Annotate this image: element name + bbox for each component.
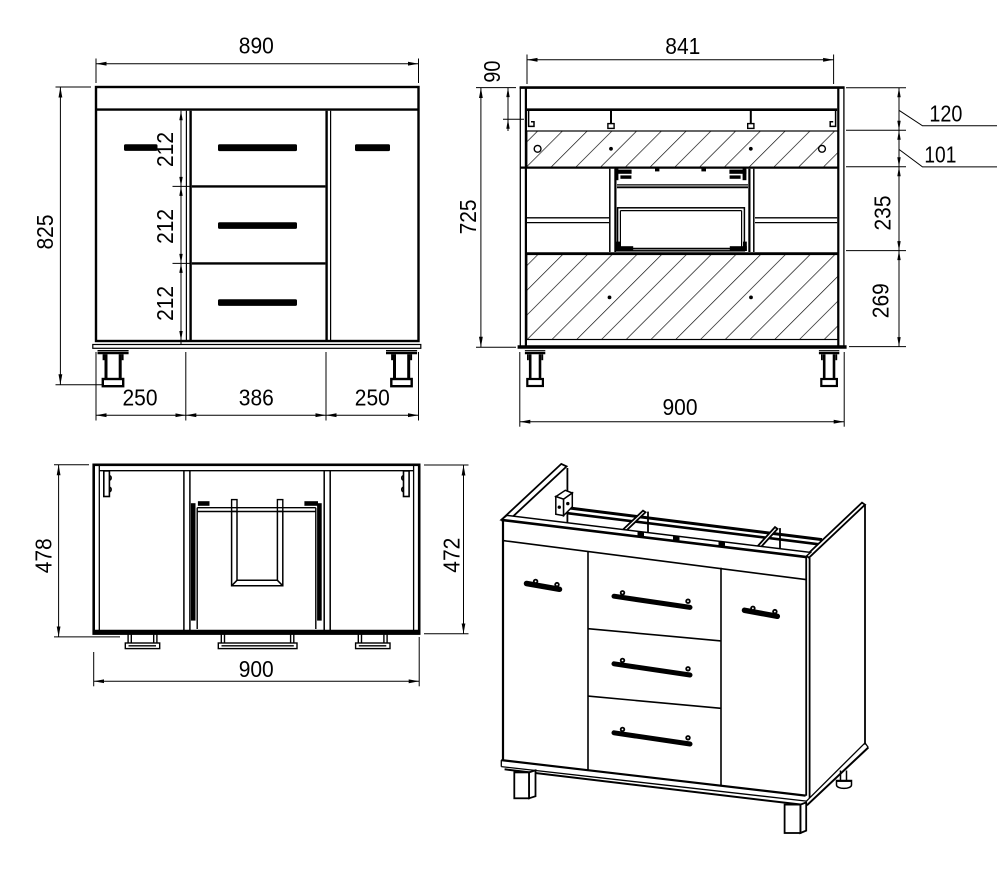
svg-text:725: 725 <box>455 199 481 234</box>
svg-text:250: 250 <box>355 384 390 410</box>
svg-text:478: 478 <box>30 538 56 573</box>
svg-text:212: 212 <box>152 132 178 167</box>
svg-text:472: 472 <box>438 538 464 573</box>
svg-text:120: 120 <box>929 100 962 126</box>
svg-text:101: 101 <box>924 142 956 168</box>
svg-text:250: 250 <box>123 384 158 410</box>
svg-text:900: 900 <box>663 394 698 420</box>
svg-text:386: 386 <box>239 384 274 410</box>
svg-text:235: 235 <box>870 196 896 231</box>
svg-text:212: 212 <box>152 209 178 244</box>
svg-text:90: 90 <box>479 61 505 83</box>
svg-text:890: 890 <box>239 33 274 59</box>
svg-text:825: 825 <box>32 215 58 250</box>
svg-text:212: 212 <box>152 286 178 321</box>
svg-text:900: 900 <box>239 656 274 682</box>
svg-text:841: 841 <box>665 33 700 59</box>
svg-text:269: 269 <box>868 283 894 318</box>
